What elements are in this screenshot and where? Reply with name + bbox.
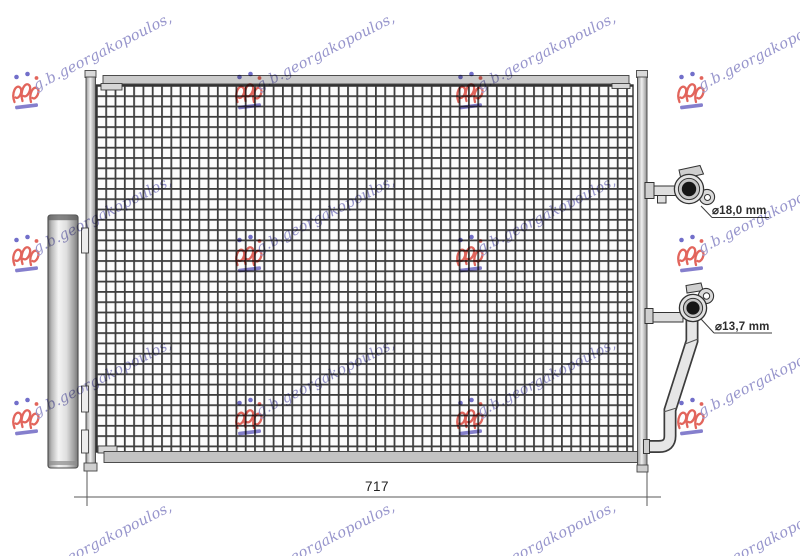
- condenser-diagram: [0, 0, 800, 556]
- width-dimension-label: 717: [352, 479, 402, 494]
- outlet-pipe: [644, 320, 699, 454]
- port-fitting-18mm: [645, 166, 715, 205]
- port-leader-lines: [701, 206, 772, 333]
- parts-catalog-drawing: ⌀18,0 mm ⌀13,7 mm 717 g.b.georgakopoulos…: [0, 0, 800, 556]
- port-diameter-13mm-label: ⌀13,7 mm: [715, 319, 770, 333]
- right-tank: [637, 71, 649, 473]
- port-diameter-18mm-label: ⌀18,0 mm: [712, 203, 767, 217]
- condenser-core-grid: [96, 85, 633, 452]
- receiver-drier: [48, 215, 78, 468]
- port-fitting-13mm: [645, 283, 714, 324]
